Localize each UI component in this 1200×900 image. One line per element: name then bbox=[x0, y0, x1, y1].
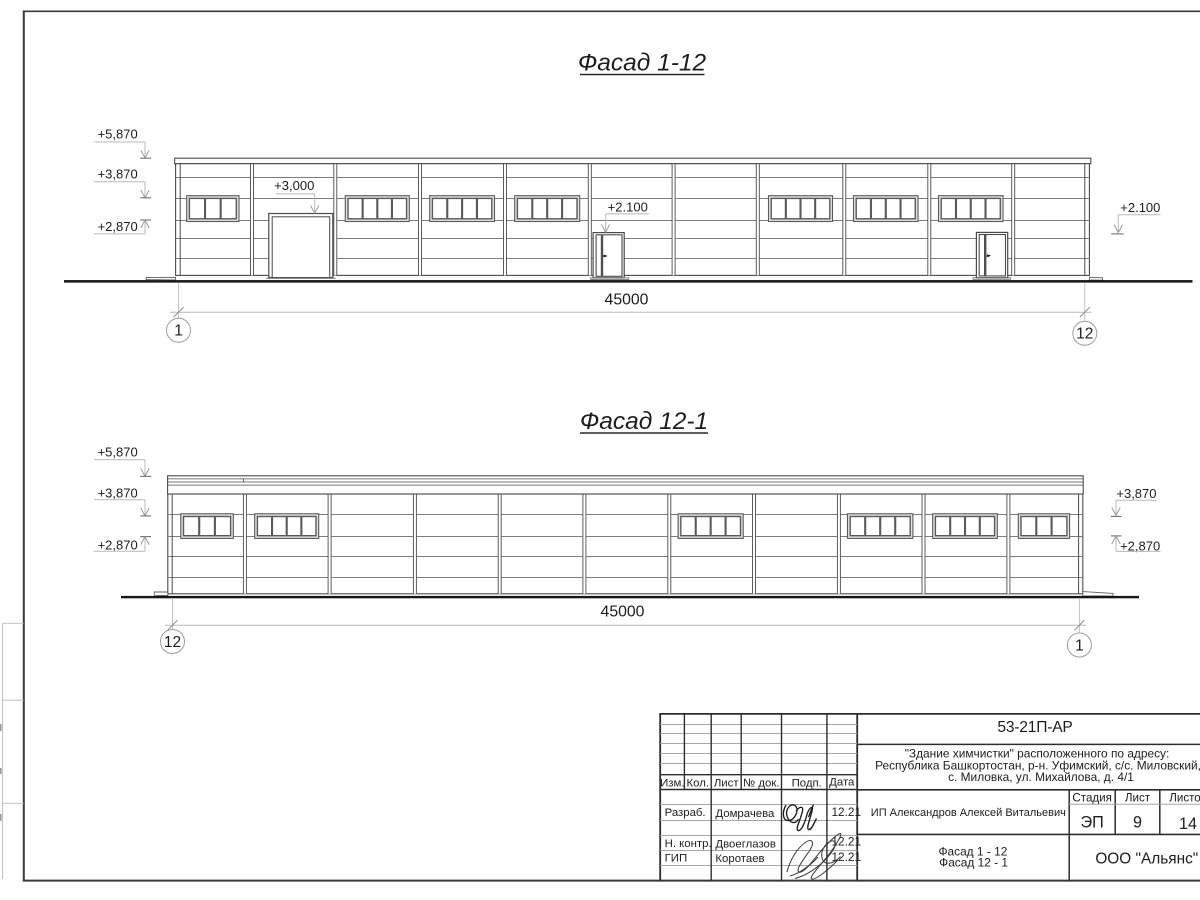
svg-text:Лист: Лист bbox=[1125, 792, 1151, 805]
svg-text:+3,870: +3,870 bbox=[1116, 486, 1156, 501]
svg-text:45000: 45000 bbox=[601, 604, 645, 621]
svg-text:12.21: 12.21 bbox=[832, 805, 862, 819]
svg-text:ЭП: ЭП bbox=[1081, 813, 1104, 831]
svg-text:№ док.: № док. bbox=[743, 777, 780, 789]
svg-text:9: 9 bbox=[1133, 813, 1142, 831]
svg-text:45000: 45000 bbox=[605, 292, 649, 309]
svg-text:+2.100: +2.100 bbox=[608, 200, 648, 215]
svg-text:Фасад 12-1: Фасад 12-1 bbox=[580, 408, 708, 435]
svg-text:Лист: Лист bbox=[714, 777, 740, 789]
svg-text:12: 12 bbox=[164, 634, 181, 651]
svg-text:1: 1 bbox=[1075, 637, 1084, 654]
svg-text:ИП Александров Алексей Виталье: ИП Александров Алексей Витальевич bbox=[871, 807, 1066, 819]
svg-text:Стадия: Стадия bbox=[1072, 792, 1112, 805]
svg-text:ООО "Альянс": ООО "Альянс" bbox=[1095, 851, 1198, 868]
svg-text:+2.100: +2.100 bbox=[1120, 200, 1160, 215]
svg-text:Двоеглазов: Двоеглазов bbox=[715, 838, 776, 850]
svg-text:Коротаев: Коротаев bbox=[715, 853, 764, 865]
svg-text:Разраб.: Разраб. bbox=[665, 807, 706, 819]
svg-text:ГИП: ГИП bbox=[665, 853, 688, 865]
svg-text:Н. контр.: Н. контр. bbox=[665, 838, 712, 850]
svg-text:+5,870: +5,870 bbox=[98, 444, 138, 459]
svg-text:Фасад 12 - 1: Фасад 12 - 1 bbox=[939, 856, 1008, 870]
svg-text:с. Миловка, ул. Михайлова, д.: с. Миловка, ул. Михайлова, д. 4/1 bbox=[948, 770, 1134, 784]
svg-text:12: 12 bbox=[1076, 326, 1093, 343]
svg-text:+5,870: +5,870 bbox=[98, 126, 138, 141]
svg-text:Подп.: Подп. bbox=[792, 777, 822, 789]
svg-text:Изм.: Изм. bbox=[660, 777, 684, 789]
svg-text:14: 14 bbox=[1179, 815, 1197, 833]
svg-text:+2,870: +2,870 bbox=[98, 219, 138, 234]
svg-text:1: 1 bbox=[174, 323, 183, 340]
svg-text:Кол.: Кол. bbox=[687, 777, 710, 789]
svg-text:+2,870: +2,870 bbox=[98, 538, 138, 553]
svg-text:+3,870: +3,870 bbox=[98, 486, 138, 501]
svg-text:Домрачева: Домрачева bbox=[715, 808, 775, 820]
svg-text:+3,870: +3,870 bbox=[98, 166, 138, 181]
svg-text:Дата: Дата bbox=[829, 777, 855, 789]
svg-text:53-21П-АР: 53-21П-АР bbox=[997, 719, 1072, 736]
svg-text:Фасад 1-12: Фасад 1-12 bbox=[578, 50, 707, 77]
svg-text:Листо: Листо bbox=[1169, 792, 1200, 805]
svg-text:+3,000: +3,000 bbox=[274, 178, 314, 193]
